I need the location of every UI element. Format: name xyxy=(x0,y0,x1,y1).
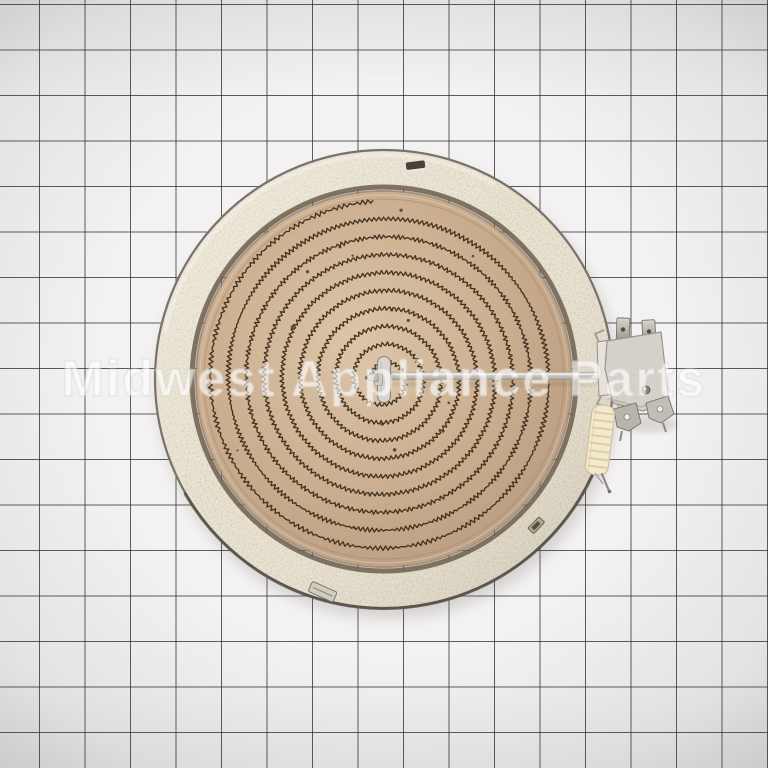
limiter-probe-rod xyxy=(390,372,614,387)
product-photo: Midwest Appliance Parts xyxy=(0,0,768,768)
heating-element-photo xyxy=(0,0,768,768)
